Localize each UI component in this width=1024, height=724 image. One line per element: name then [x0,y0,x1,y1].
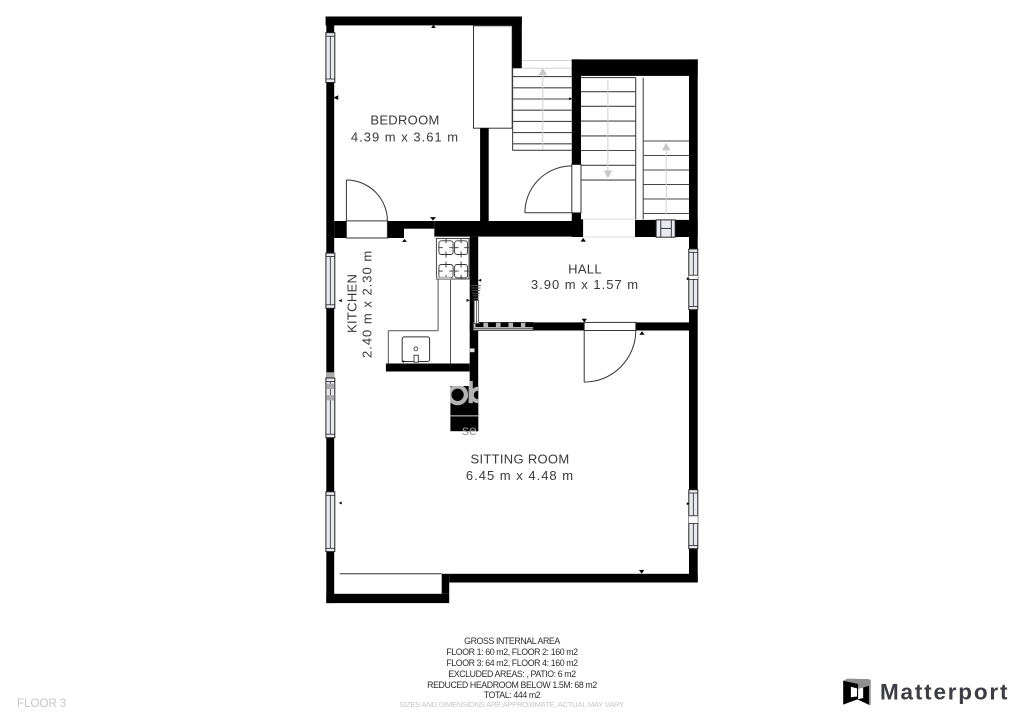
svg-text:Matterport: Matterport [880,680,1009,705]
svg-text:KITCHEN: KITCHEN [345,274,360,333]
svg-text:3.90 m x 1.57 m: 3.90 m x 1.57 m [531,277,639,292]
svg-text:4.39 m x 3.61 m: 4.39 m x 3.61 m [351,130,459,145]
svg-text:SITTING ROOM: SITTING ROOM [471,452,570,467]
svg-text:2.40 m x 2.30 m: 2.40 m x 2.30 m [359,250,374,358]
svg-text:FLOOR 1: 60 m2, FLOOR 2: 160 m: FLOOR 1: 60 m2, FLOOR 2: 160 m2 [446,647,578,657]
svg-text:se: se [462,422,477,438]
svg-text:6.45 m x 4.48 m: 6.45 m x 4.48 m [466,468,574,483]
svg-text:BEDROOM: BEDROOM [370,112,439,127]
svg-text:GROSS INTERNAL AREA: GROSS INTERNAL AREA [464,636,560,646]
svg-text:TOTAL: 444 m2: TOTAL: 444 m2 [484,690,541,700]
svg-text:HALL: HALL [568,261,602,276]
svg-text:REDUCED HEADROOM BELOW 1.5M: 6: REDUCED HEADROOM BELOW 1.5M: 68 m2 [427,680,597,690]
svg-text:FLOOR 3: FLOOR 3 [17,696,67,710]
svg-text:SIZES AND DIMENSIONS ARE APPRO: SIZES AND DIMENSIONS ARE APPROXIMATE, AC… [399,700,625,709]
svg-text:FLOOR 3: 64 m2, FLOOR 4: 160 m: FLOOR 3: 64 m2, FLOOR 4: 160 m2 [446,658,578,668]
svg-text:EXCLUDED AREAS: , PATIO: 6 m2: EXCLUDED AREAS: , PATIO: 6 m2 [448,669,576,679]
